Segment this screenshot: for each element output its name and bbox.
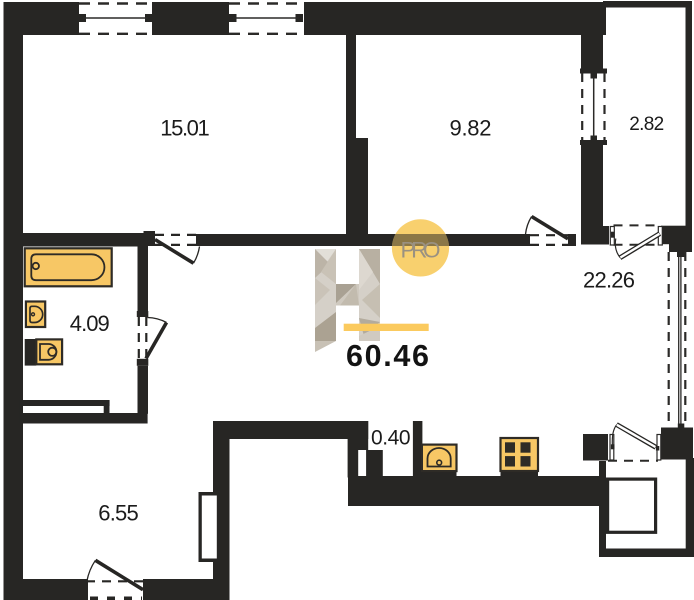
svg-text:PRO: PRO bbox=[401, 237, 441, 262]
svg-text:60.46: 60.46 bbox=[346, 339, 429, 373]
svg-text:15.01: 15.01 bbox=[160, 116, 210, 141]
svg-text:6.55: 6.55 bbox=[98, 501, 139, 526]
svg-text:9.82: 9.82 bbox=[450, 115, 492, 140]
svg-text:2.82: 2.82 bbox=[629, 114, 664, 135]
svg-text:0.40: 0.40 bbox=[371, 427, 411, 450]
svg-text:4.09: 4.09 bbox=[70, 311, 110, 336]
svg-text:22.26: 22.26 bbox=[583, 268, 635, 293]
